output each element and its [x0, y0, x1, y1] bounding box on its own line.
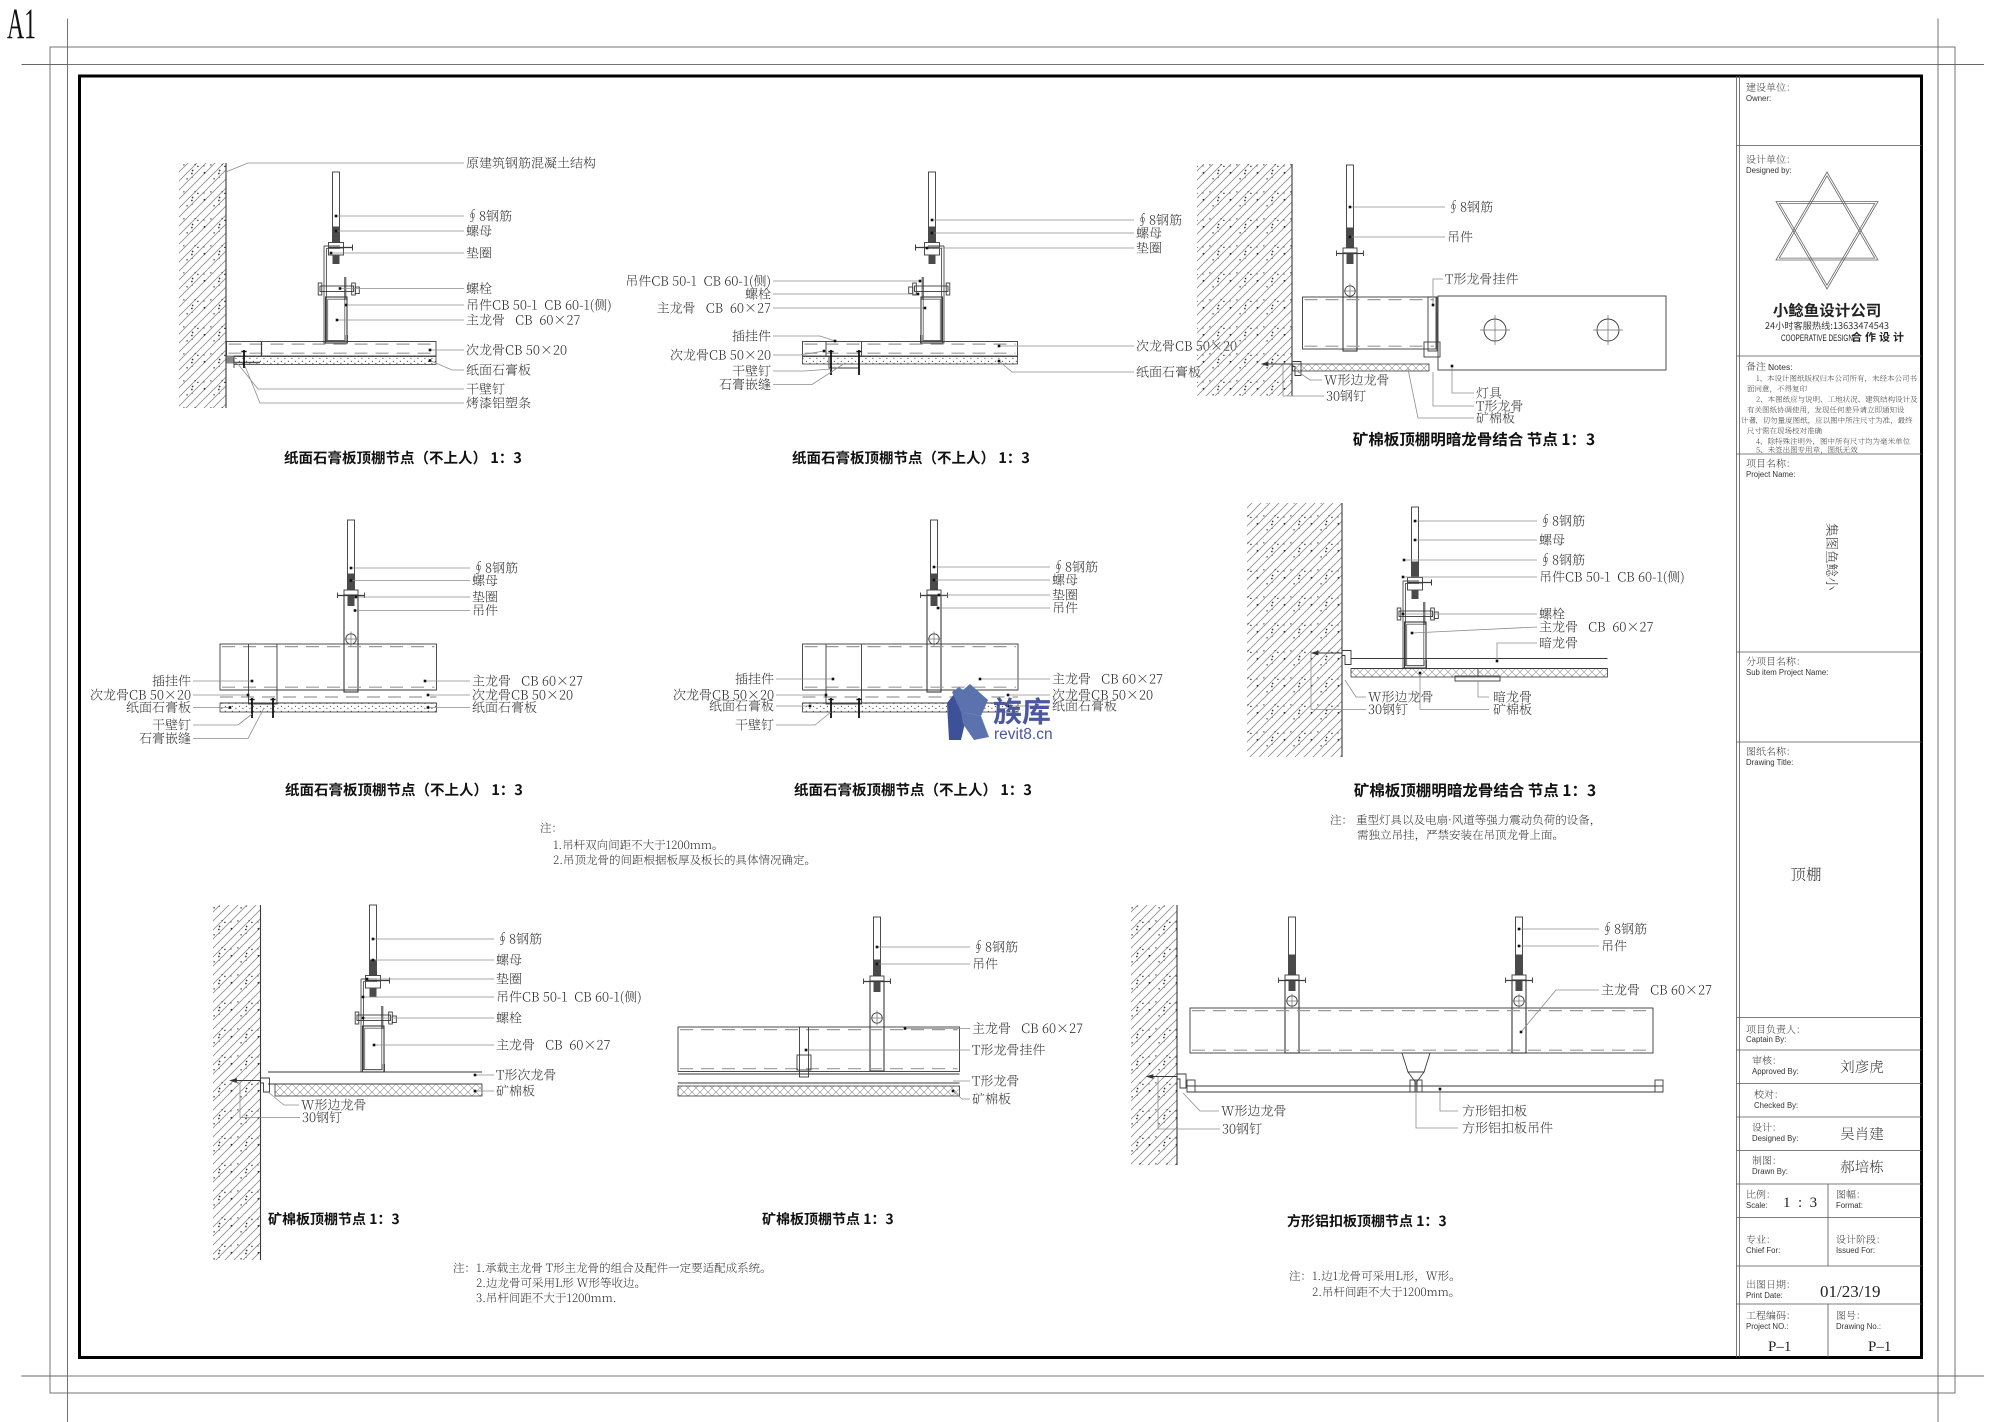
svg-text:Designed By:: Designed By: — [1752, 1134, 1798, 1143]
svg-text:A1: A1 — [7, 1, 36, 48]
svg-text:Drawing Title:: Drawing Title: — [1746, 758, 1793, 767]
svg-text:Owner:: Owner: — [1746, 94, 1771, 103]
svg-text:Project Name:: Project Name: — [1746, 470, 1795, 479]
svg-text:Sub item Project Name:: Sub item Project Name: — [1746, 668, 1828, 677]
svg-text:Project NO.:: Project NO.: — [1746, 1322, 1788, 1331]
svg-text:Chief For:: Chief For: — [1746, 1246, 1780, 1255]
svg-text:1 : 3: 1 : 3 — [1783, 1195, 1817, 1211]
svg-text:01/23/19: 01/23/19 — [1820, 1282, 1880, 1301]
svg-text:P–1: P–1 — [1868, 1339, 1891, 1355]
svg-text:Format:: Format: — [1836, 1201, 1863, 1210]
svg-text:Issued For:: Issued For: — [1836, 1246, 1875, 1255]
svg-text:Notes:: Notes: — [1768, 362, 1793, 372]
svg-text:Captain By:: Captain By: — [1746, 1035, 1786, 1044]
svg-text:COOPERATIVE DESIGN: COOPERATIVE DESIGN — [1781, 333, 1853, 343]
svg-text:Drawing No.:: Drawing No.: — [1836, 1322, 1881, 1331]
svg-text:revit8.cn: revit8.cn — [994, 726, 1053, 743]
svg-text:Designed by:: Designed by: — [1746, 166, 1792, 175]
svg-text:Approved By:: Approved By: — [1752, 1067, 1799, 1076]
svg-text:Print Date:: Print Date: — [1746, 1291, 1783, 1300]
svg-text:Scale:: Scale: — [1746, 1201, 1768, 1210]
svg-text:P–1: P–1 — [1768, 1339, 1791, 1355]
svg-text:Checked By:: Checked By: — [1754, 1101, 1798, 1110]
svg-text:Drawn By:: Drawn By: — [1752, 1167, 1788, 1176]
